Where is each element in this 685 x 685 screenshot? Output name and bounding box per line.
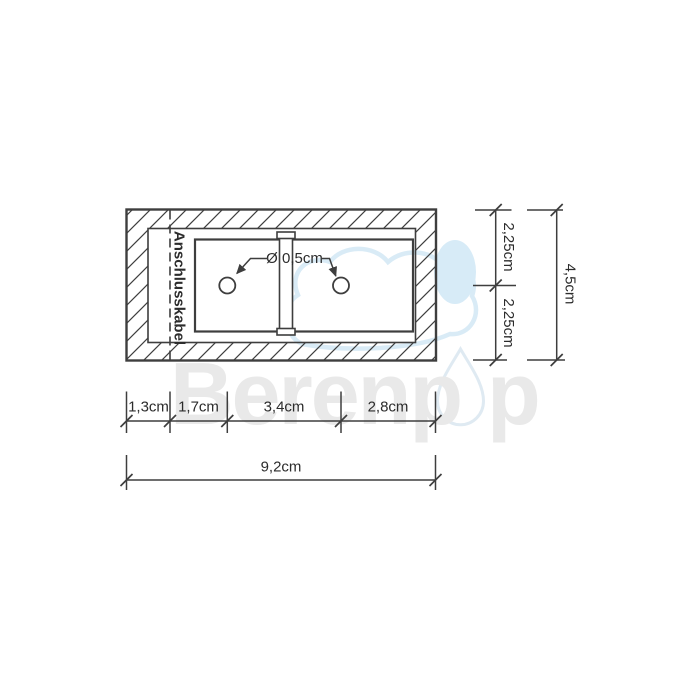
dim-label-seg2: 1,7cm <box>178 399 219 416</box>
dim-label-lower-half: 2,25cm <box>500 298 517 347</box>
dimension-drawing: Anschlusskabel Ø 0,5cm <box>0 0 685 685</box>
technical-drawing-canvas: Berenp p Anschlusskabel <box>0 0 685 685</box>
hole-diameter-label: Ø 0,5cm <box>266 250 323 267</box>
mounting-hole-left <box>219 278 235 294</box>
dim-label-total-height: 4,5cm <box>562 264 579 305</box>
dim-label-seg1: 1,3cm <box>128 399 169 416</box>
dim-label-total-width: 9,2cm <box>261 459 302 476</box>
dim-label-seg4: 2,8cm <box>368 399 409 416</box>
column-bottom-cap <box>277 329 295 336</box>
dim-label-seg3: 3,4cm <box>264 399 305 416</box>
vertical-dimensions <box>473 204 565 366</box>
cable-label: Anschlusskabel <box>171 231 188 345</box>
column-top-cap <box>277 232 295 239</box>
leader-line-right <box>321 259 336 277</box>
dim-label-upper-half: 2,25cm <box>500 222 517 271</box>
mounting-hole-right <box>333 278 349 294</box>
leader-line-left <box>237 259 268 274</box>
